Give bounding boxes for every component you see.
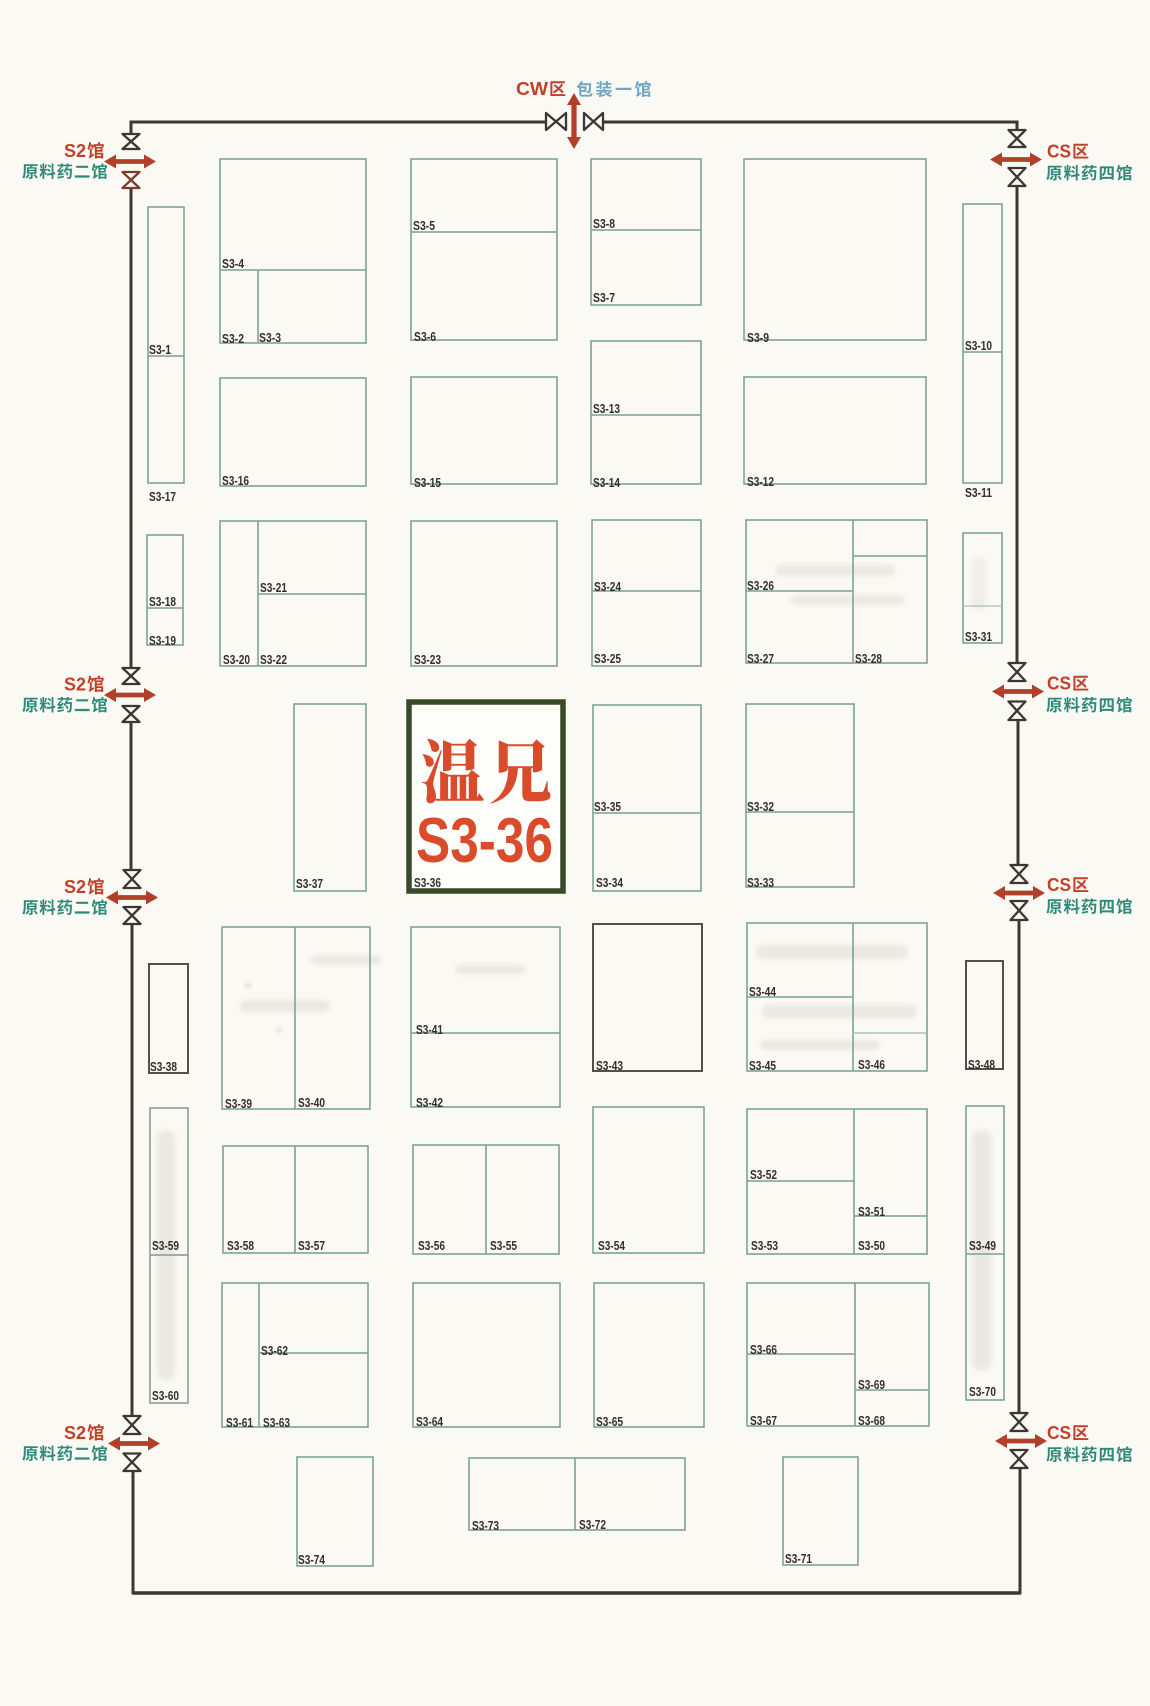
svg-text:S3-35: S3-35 — [594, 800, 621, 814]
svg-text:S3-54: S3-54 — [598, 1239, 625, 1253]
svg-text:S2: S2 — [64, 1423, 86, 1443]
svg-text:S3-42: S3-42 — [416, 1096, 443, 1110]
svg-text:S3-57: S3-57 — [298, 1239, 325, 1253]
svg-text:S3-71: S3-71 — [785, 1552, 812, 1566]
svg-text:S3-59: S3-59 — [152, 1239, 179, 1253]
svg-text:S3-56: S3-56 — [418, 1239, 445, 1253]
svg-text:S3-14: S3-14 — [593, 476, 620, 490]
svg-text:S3-58: S3-58 — [227, 1239, 254, 1253]
svg-text:S3-50: S3-50 — [858, 1239, 885, 1253]
svg-text:S3-32: S3-32 — [747, 800, 774, 814]
svg-text:S3-38: S3-38 — [150, 1060, 177, 1074]
svg-text:S3-48: S3-48 — [968, 1058, 995, 1072]
svg-text:S3-62: S3-62 — [261, 1344, 288, 1358]
svg-text:S3-15: S3-15 — [414, 476, 441, 490]
svg-text:S3-52: S3-52 — [750, 1168, 777, 1182]
svg-text:CS: CS — [1047, 142, 1071, 162]
svg-text:S3-10: S3-10 — [965, 339, 992, 353]
svg-text:S3-6: S3-6 — [414, 330, 436, 344]
svg-text:CW: CW — [516, 79, 548, 99]
svg-text:S3-31: S3-31 — [965, 630, 992, 644]
svg-text:S3-19: S3-19 — [149, 634, 176, 648]
svg-text:S3-61: S3-61 — [226, 1416, 253, 1430]
svg-text:S3-72: S3-72 — [579, 1518, 606, 1532]
svg-text:CS: CS — [1047, 674, 1071, 694]
svg-text:S3-13: S3-13 — [593, 402, 620, 416]
svg-text:S3-33: S3-33 — [747, 876, 774, 890]
svg-text:S3-27: S3-27 — [747, 652, 774, 666]
svg-text:S3-68: S3-68 — [858, 1414, 885, 1428]
svg-text:CS: CS — [1047, 875, 1071, 895]
svg-text:S3-28: S3-28 — [855, 652, 882, 666]
svg-text:S3-73: S3-73 — [472, 1519, 499, 1533]
svg-text:S3-51: S3-51 — [858, 1205, 885, 1219]
svg-text:S3-4: S3-4 — [222, 257, 244, 271]
svg-text:S3-43: S3-43 — [596, 1059, 623, 1073]
svg-text:S3-20: S3-20 — [223, 653, 250, 667]
svg-text:S3-67: S3-67 — [750, 1414, 777, 1428]
svg-text:S3-7: S3-7 — [593, 291, 615, 305]
svg-text:S3-49: S3-49 — [969, 1239, 996, 1253]
svg-text:S3-63: S3-63 — [263, 1416, 290, 1430]
svg-text:S3-17: S3-17 — [149, 490, 176, 504]
svg-text:S3-36: S3-36 — [414, 876, 441, 890]
svg-text:S3-3: S3-3 — [259, 331, 281, 345]
svg-text:S3-60: S3-60 — [152, 1389, 179, 1403]
svg-text:S3-12: S3-12 — [747, 475, 774, 489]
svg-text:S3-18: S3-18 — [149, 595, 176, 609]
svg-text:S3-69: S3-69 — [858, 1378, 885, 1392]
svg-text:S3-45: S3-45 — [749, 1059, 776, 1073]
svg-text:S3-44: S3-44 — [749, 985, 776, 999]
svg-text:S3-41: S3-41 — [416, 1023, 443, 1037]
svg-text:S3-70: S3-70 — [969, 1385, 996, 1399]
svg-text:S3-65: S3-65 — [596, 1415, 623, 1429]
svg-text:S3-36: S3-36 — [416, 806, 553, 876]
svg-text:S3-66: S3-66 — [750, 1343, 777, 1357]
svg-text:S3-5: S3-5 — [413, 219, 435, 233]
svg-text:CS: CS — [1047, 1423, 1071, 1443]
svg-text:S3-46: S3-46 — [858, 1058, 885, 1072]
svg-text:S3-24: S3-24 — [594, 580, 621, 594]
svg-text:S3-25: S3-25 — [594, 652, 621, 666]
svg-text:S3-55: S3-55 — [490, 1239, 517, 1253]
svg-text:S2: S2 — [64, 675, 86, 695]
svg-text:S3-37: S3-37 — [296, 877, 323, 891]
svg-text:S3-34: S3-34 — [596, 876, 623, 890]
svg-text:S3-16: S3-16 — [222, 474, 249, 488]
svg-text:S3-22: S3-22 — [260, 653, 287, 667]
svg-text:S3-64: S3-64 — [416, 1415, 443, 1429]
svg-text:S3-40: S3-40 — [298, 1096, 325, 1110]
svg-text:S3-11: S3-11 — [965, 486, 992, 500]
svg-text:S3-39: S3-39 — [225, 1097, 252, 1111]
svg-text:S3-23: S3-23 — [414, 653, 441, 667]
svg-text:S3-8: S3-8 — [593, 217, 615, 231]
svg-text:S3-26: S3-26 — [747, 579, 774, 593]
svg-text:S3-21: S3-21 — [260, 581, 287, 595]
svg-text:S3-1: S3-1 — [149, 343, 171, 357]
svg-text:S3-74: S3-74 — [298, 1553, 325, 1567]
svg-text:S3-53: S3-53 — [751, 1239, 778, 1253]
svg-text:S3-2: S3-2 — [222, 332, 244, 346]
svg-text:S3-9: S3-9 — [747, 331, 769, 345]
svg-text:S2: S2 — [64, 877, 86, 897]
svg-text:S2: S2 — [64, 141, 86, 161]
